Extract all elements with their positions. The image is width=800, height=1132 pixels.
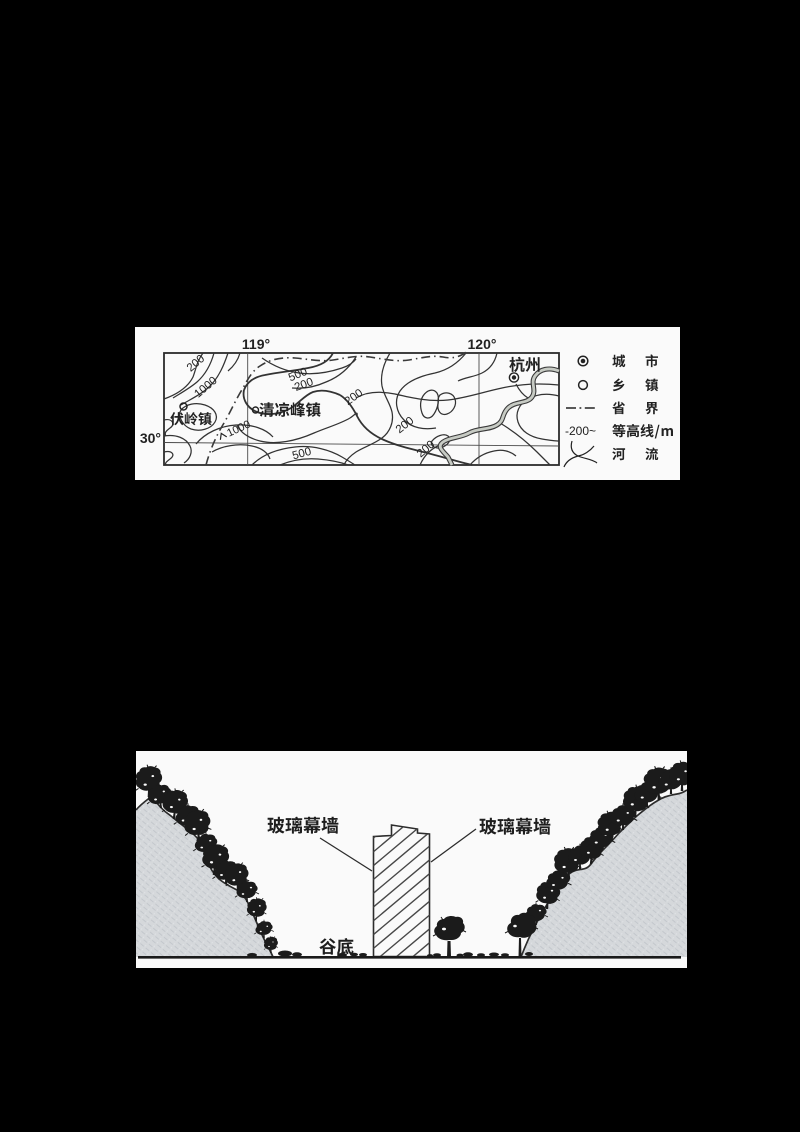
- svg-text:500: 500: [291, 446, 313, 463]
- svg-text:200: 200: [343, 387, 366, 408]
- svg-text:200: 200: [415, 439, 437, 461]
- svg-text:200: 200: [394, 415, 417, 436]
- svg-text:200: 200: [185, 353, 207, 375]
- svg-text:119°: 119°: [242, 336, 270, 352]
- svg-text:120°: 120°: [468, 336, 497, 352]
- svg-text:30°: 30°: [140, 430, 161, 446]
- svg-text:-200~: -200~: [565, 424, 596, 438]
